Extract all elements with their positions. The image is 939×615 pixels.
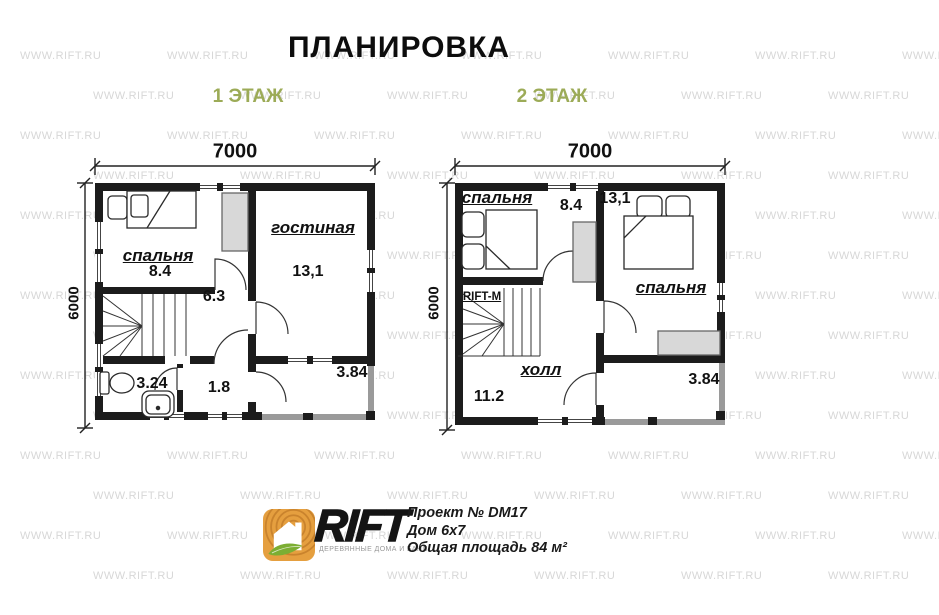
floor1-height-dimension: 6000 xyxy=(66,286,83,319)
floor2-stair-mark: RIFT-M xyxy=(463,291,501,303)
floor1-bathroom-area: 3.24 xyxy=(136,375,167,393)
floor-plan-page: WWW.RIFT.RUWWW.RIFT.RUWWW.RIFT.RUWWW.RIF… xyxy=(0,0,939,615)
floor2-bedroom-left-area: 8.4 xyxy=(560,197,582,215)
floor1-hall-area: 6.3 xyxy=(203,288,225,306)
rift-logo-icon xyxy=(263,509,315,561)
floor2-width-dimension: 7000 xyxy=(568,141,613,164)
floor2-height-dimension: 6000 xyxy=(426,286,443,319)
text-layer: ПЛАНИРОВКА 1 ЭТАЖ 2 ЭТАЖ 7000 6000 7000 … xyxy=(0,0,939,615)
project-info: Проект № DM17 Дом 6х7 Общая площадь 84 м… xyxy=(407,505,567,558)
floor1-width-dimension: 7000 xyxy=(213,141,258,164)
floor1-entry-area: 1.8 xyxy=(208,379,230,397)
floor2-balcony-area: 3.84 xyxy=(688,371,719,389)
house-size: Дом 6х7 xyxy=(407,523,567,541)
floor1-bedroom-area: 8.4 xyxy=(149,263,171,281)
floor2-bedroom-left-label: спальня xyxy=(462,188,532,208)
floor1-terrace-area: 3.84 xyxy=(336,364,367,382)
floor2-hall-label: холл xyxy=(521,360,562,380)
floor2-label: 2 ЭТАЖ xyxy=(517,86,588,108)
page-title: ПЛАНИРОВКА xyxy=(288,31,510,65)
floor1-label: 1 ЭТАЖ xyxy=(213,86,284,108)
floor2-bedroom-right-label: спальня xyxy=(636,278,706,298)
brand-name: RIFT xyxy=(313,500,409,552)
floor1-living-label: гостиная xyxy=(271,218,355,238)
floor2-bedroom-right-area: 13,1 xyxy=(599,190,630,208)
project-number: Проект № DM17 xyxy=(407,505,567,523)
floor1-living-area: 13,1 xyxy=(292,263,323,281)
floor2-hall-area: 11.2 xyxy=(474,388,504,406)
total-area: Общая площадь 84 м² xyxy=(407,540,567,558)
